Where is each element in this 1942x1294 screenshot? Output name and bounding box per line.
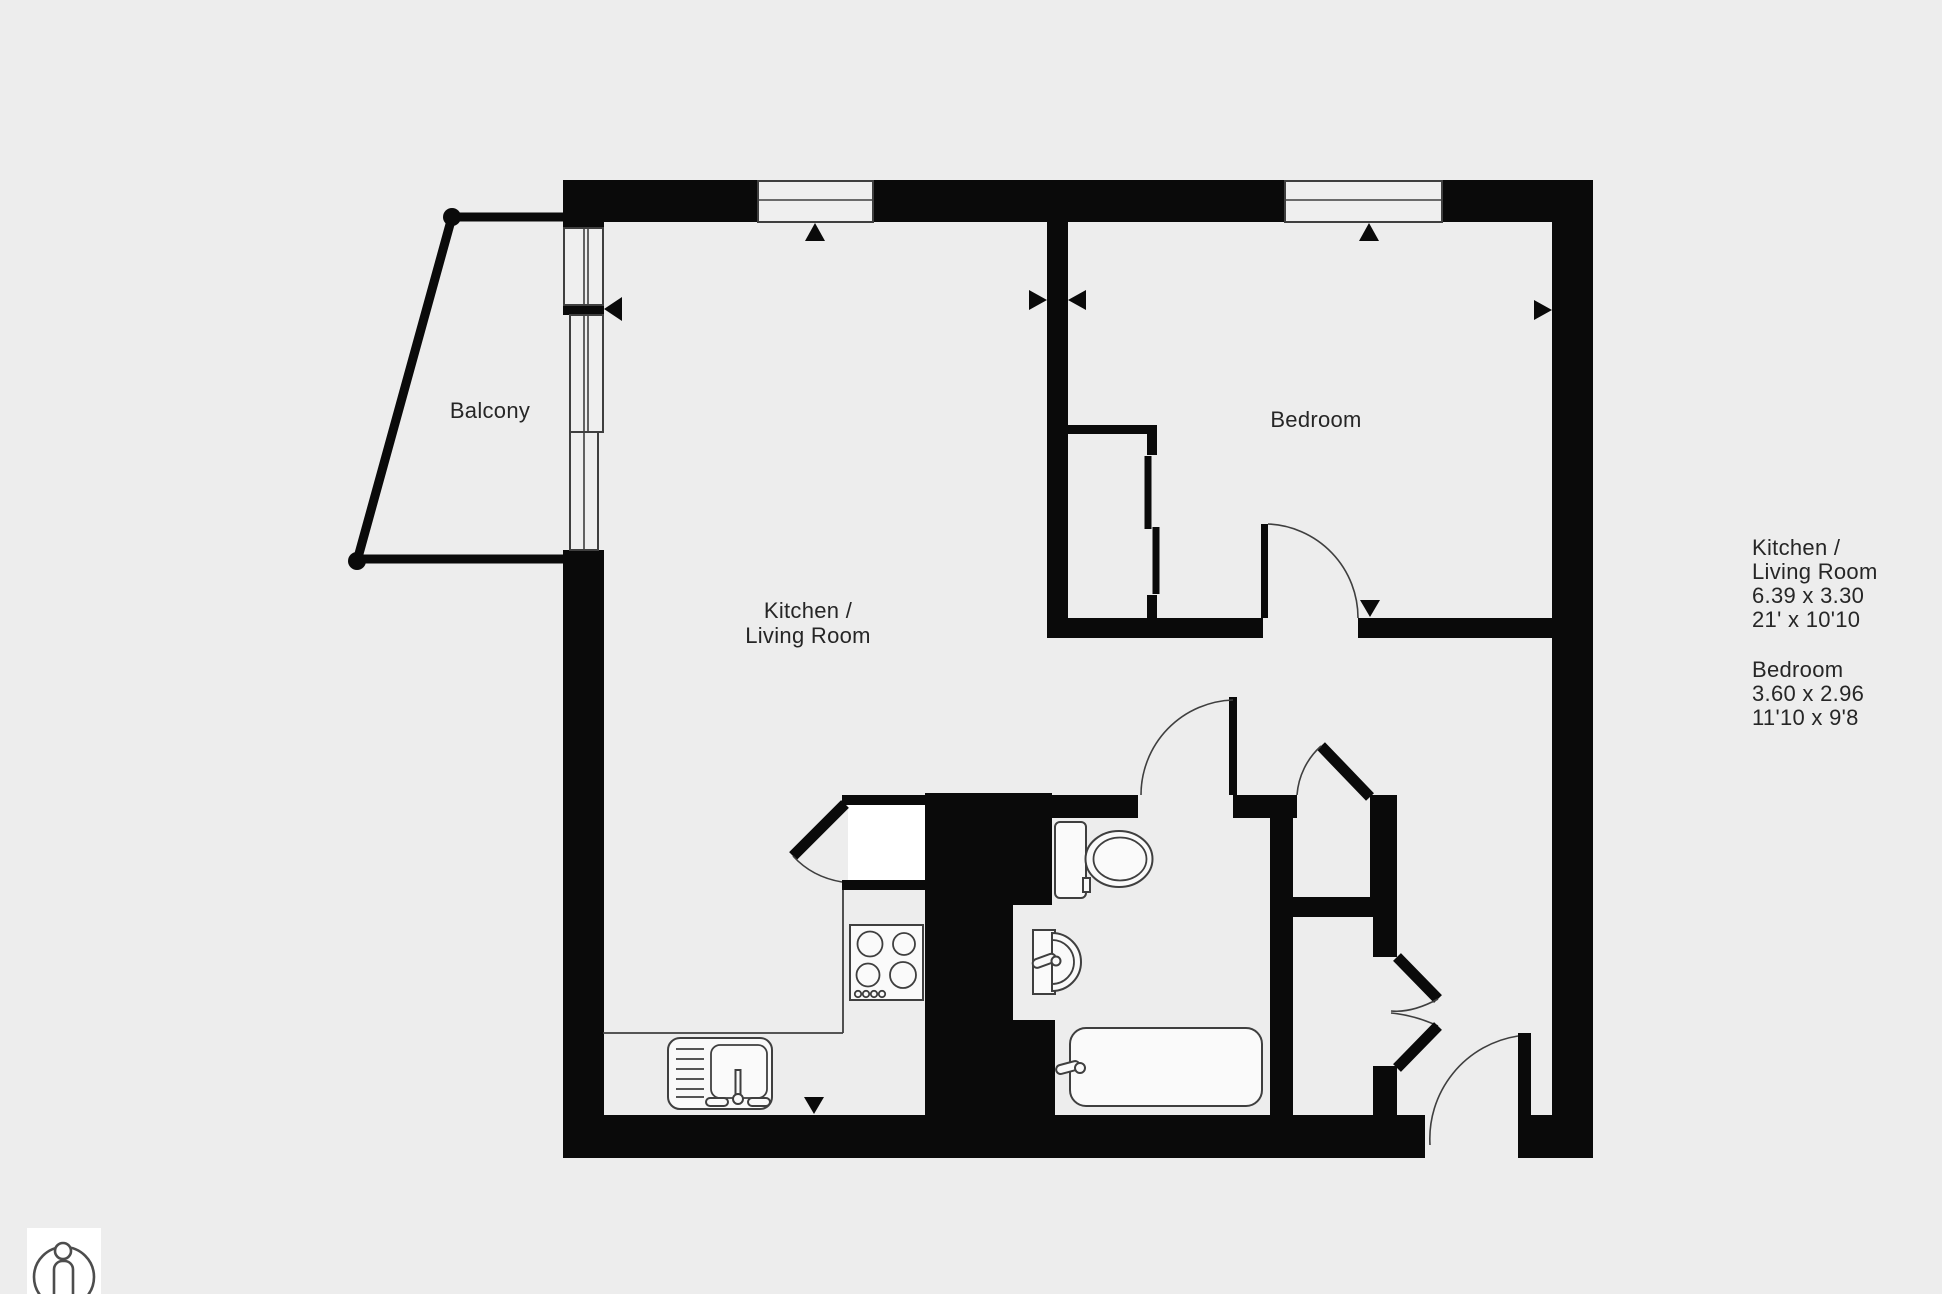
wall-bathroom-top-left (1052, 795, 1138, 818)
kitchen-sink (668, 1038, 772, 1109)
person-scale-icon (27, 1228, 101, 1294)
sink-tap-base (1052, 957, 1061, 966)
bathroom-door (1141, 697, 1237, 795)
entry-door (1430, 1033, 1531, 1145)
sink-tap-base (733, 1094, 743, 1104)
toilet-bowl (1086, 831, 1153, 887)
floorplan-svg: Balcony Kitchen / Living Room Bedroom Ki… (0, 0, 1942, 1294)
wall-left-top (563, 180, 604, 228)
marker-bedroom-right-wall (1534, 300, 1552, 320)
service-block-middle (925, 905, 1013, 1020)
wall-bottom-left (563, 1115, 1425, 1158)
wall-wardrobe-stub-top (1147, 425, 1157, 455)
bedroom-door (1261, 524, 1358, 618)
stove (850, 925, 923, 1000)
bedroom-window (1285, 181, 1442, 222)
windows (564, 181, 1442, 550)
bathroom-fixtures (1031, 822, 1262, 1106)
cupboard-door-leaf (793, 804, 845, 856)
wardrobe-sliding-doors (1148, 456, 1156, 594)
wall-hall-cupboard-right (1370, 795, 1397, 917)
sink-tap (736, 1070, 741, 1096)
toilet-flush (1083, 878, 1090, 892)
balcony-railing (348, 208, 563, 570)
legend-kitchen-name-line2: Living Room (1752, 559, 1878, 584)
person-head (55, 1243, 71, 1259)
wall-storage-right-upper (1373, 917, 1397, 957)
legend-kitchen-imperial: 21' x 10'10 (1752, 607, 1860, 632)
kitchen-cupboard (793, 804, 925, 882)
toilet-cistern (1055, 822, 1086, 898)
wall-bathroom-hall (1270, 795, 1293, 1115)
dimensions-legend: Kitchen / Living Room 6.39 x 3.30 21' x … (1752, 535, 1878, 730)
exterior-walls (563, 180, 1593, 1158)
marker-divider-right (1068, 290, 1086, 310)
bathroom-sink (1031, 930, 1081, 994)
railing-post (443, 208, 461, 226)
wall-right (1552, 180, 1593, 1158)
balcony-window-lower (570, 432, 598, 550)
legend-bedroom-name: Bedroom (1752, 657, 1843, 682)
marker-divider-left (1029, 290, 1047, 310)
wall-bedroom-bottom-left (1047, 618, 1263, 638)
wall-living-bedroom-divider (1047, 222, 1068, 638)
marker-balcony-window (604, 297, 622, 321)
wall-cupboards-divider (1293, 897, 1373, 917)
balcony-window-middle (570, 315, 603, 432)
service-block-upper (925, 793, 1052, 905)
interior-walls (842, 222, 1552, 1115)
kitchen-living-label-line2: Living Room (745, 623, 871, 648)
wall-kitchen-cupboard-bottom (842, 880, 925, 890)
wall-left-lower (563, 550, 604, 1158)
storage-bifold-door (1391, 957, 1438, 1068)
legend-bedroom-metric: 3.60 x 2.96 (1752, 681, 1864, 706)
person-body (54, 1261, 73, 1294)
hall-cupboard-door (1297, 746, 1370, 797)
legend-kitchen-metric: 6.39 x 3.30 (1752, 583, 1864, 608)
balcony-label: Balcony (450, 398, 530, 423)
railing-post (348, 552, 366, 570)
cupboard-door-swing (793, 856, 842, 882)
wall-wardrobe-stub-bottom (1147, 595, 1157, 618)
sink-handle-right (748, 1098, 770, 1106)
kitchen-counter (603, 890, 843, 1033)
wall-left-window-separator (563, 305, 604, 315)
sink-handle-left (706, 1098, 728, 1106)
service-block-lower (925, 1020, 1055, 1115)
wall-bedroom-bottom-right (1358, 618, 1552, 638)
wall-wardrobe-top (1068, 425, 1157, 434)
toilet (1055, 822, 1153, 898)
marker-kitchen-window (805, 223, 825, 241)
legend-bedroom-imperial: 11'10 x 9'8 (1752, 705, 1859, 730)
wall-kitchen-cupboard-top (842, 795, 925, 805)
floorplan-canvas: Balcony Kitchen / Living Room Bedroom Ki… (0, 0, 1942, 1294)
bedroom-label: Bedroom (1270, 407, 1361, 432)
balcony-window-upper (564, 228, 603, 305)
cupboard-interior (848, 805, 925, 880)
bathtub-tap-base (1075, 1063, 1085, 1073)
marker-kitchen-bottom (804, 1097, 824, 1114)
direction-markers (604, 223, 1552, 1114)
wall-storage-right-lower (1373, 1066, 1397, 1115)
marker-bedroom-window (1359, 223, 1379, 241)
kitchen-fixtures (603, 890, 923, 1109)
bathtub (1055, 1028, 1262, 1106)
kitchen-window (758, 181, 873, 222)
legend-kitchen-name-line1: Kitchen / (1752, 535, 1841, 560)
marker-bedroom-door (1360, 600, 1380, 617)
wall-top-middle (873, 180, 1285, 222)
kitchen-living-label-line1: Kitchen / (764, 598, 853, 623)
